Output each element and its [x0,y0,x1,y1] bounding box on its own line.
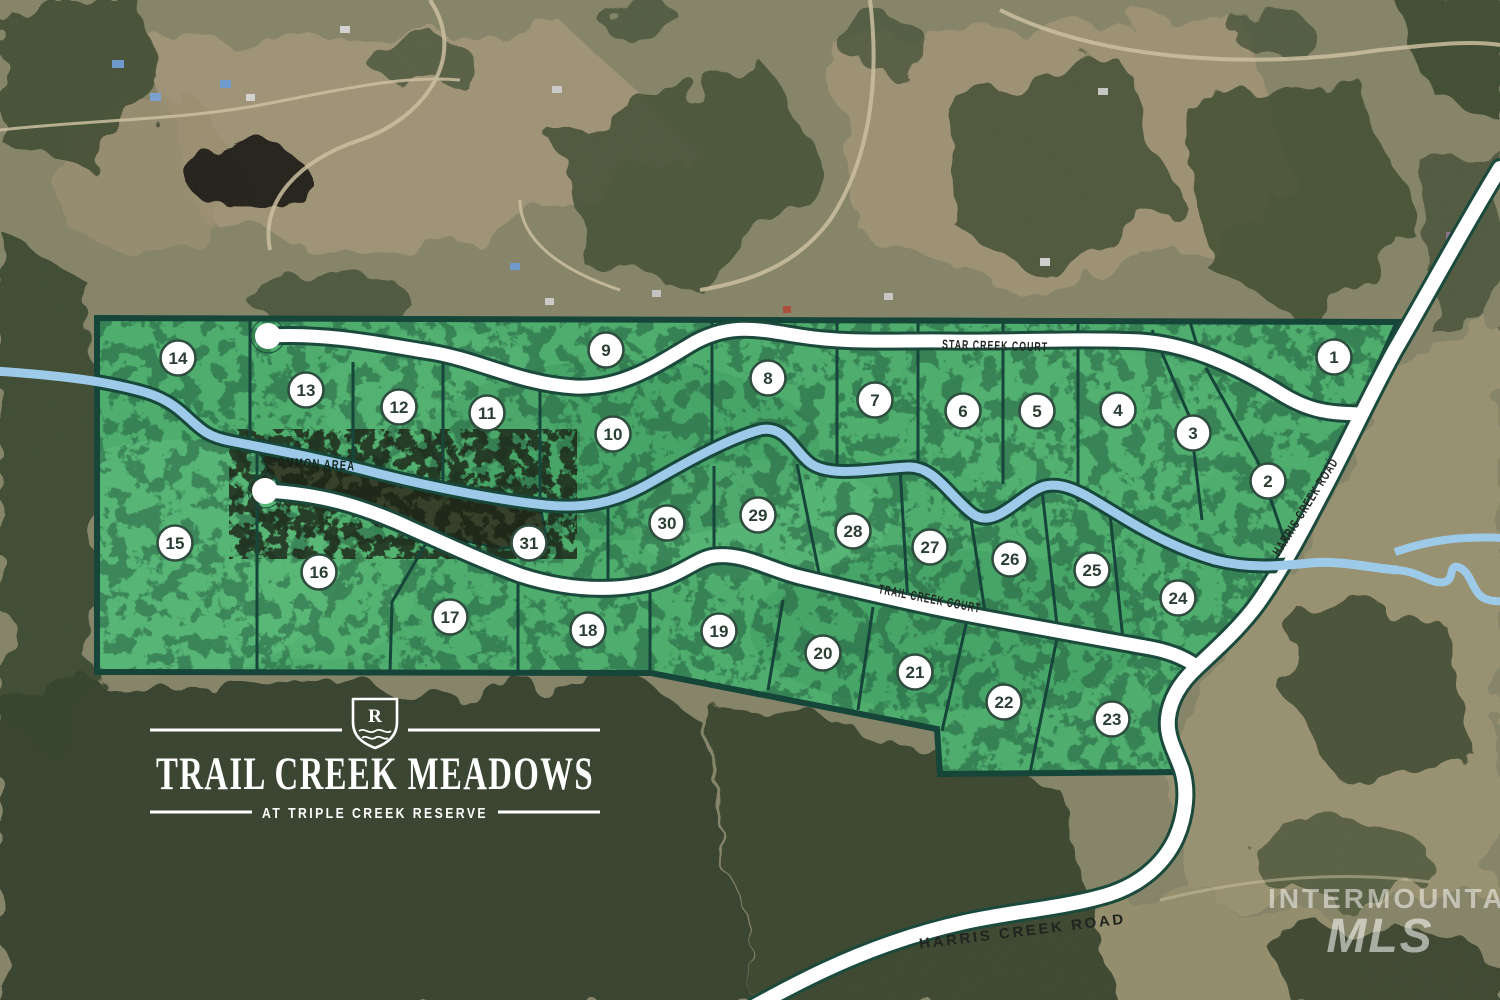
lot-badge-1: 1 [1317,340,1352,375]
lot-badge-6: 6 [946,394,981,429]
watermark-mls: MLS [1326,910,1433,963]
lot-number: 27 [921,538,940,557]
lot-badge-5: 5 [1020,394,1055,429]
lot-number: 7 [870,391,879,410]
lot-number: 13 [297,381,316,400]
lot-number: 2 [1263,472,1272,491]
plat-map-image: STAR CREEK COURT TRAIL CREEK COURT HARRI… [0,0,1500,1000]
lot-badge-21: 21 [898,655,933,690]
lot-number: 29 [749,506,768,525]
lot-badge-28: 28 [836,514,871,549]
lot-number: 4 [1113,401,1123,420]
lot-badge-29: 29 [741,498,776,533]
development-subtitle: AT TRIPLE CREEK RESERVE [262,805,488,822]
lot-badge-7: 7 [858,383,893,418]
lot-badge-14: 14 [161,341,196,376]
lot-badge-15: 15 [158,526,193,561]
star-creek-court-label: STAR CREEK COURT [942,337,1048,355]
lot-number: 6 [958,402,967,421]
lot-number: 24 [1169,589,1188,608]
lot-number: 15 [166,534,185,553]
lot-number: 30 [658,514,677,533]
lot-number: 23 [1103,710,1122,729]
star-creek-culdesac [255,323,281,349]
lot-badge-13: 13 [289,373,324,408]
lot-number: 26 [1001,550,1020,569]
development-title: TRAIL CREEK MEADOWS [156,748,594,800]
logo-monogram: R [368,706,382,727]
lot-number: 25 [1083,561,1102,580]
lot-number: 9 [601,341,610,360]
lot-number: 3 [1188,424,1197,443]
lot-number: 14 [169,349,188,368]
lot-number: 18 [579,621,598,640]
plat-map-svg: STAR CREEK COURT TRAIL CREEK COURT HARRI… [0,0,1500,1000]
lot-number: 21 [906,663,925,682]
lot-badge-16: 16 [302,555,337,590]
lot-badge-30: 30 [650,506,685,541]
lot-badge-23: 23 [1095,702,1130,737]
lot-badge-4: 4 [1101,393,1136,428]
lot-number: 31 [520,534,539,553]
lot-number: 16 [310,563,329,582]
lot-number: 28 [844,522,863,541]
lot-badge-20: 20 [806,636,841,671]
lot-badge-9: 9 [589,333,624,368]
lot-number: 1 [1329,348,1338,367]
lot-badge-10: 10 [596,417,631,452]
lot-number: 12 [390,398,409,417]
lot-number: 22 [995,693,1014,712]
lot-badge-27: 27 [913,530,948,565]
lot-badge-19: 19 [702,614,737,649]
lot-badge-22: 22 [987,685,1022,720]
lot-number: 5 [1032,402,1041,421]
lot-badge-31: 31 [512,526,547,561]
lot-number: 8 [763,369,772,388]
lot-number: 20 [814,644,833,663]
lot-badge-18: 18 [571,613,606,648]
lot-badge-25: 25 [1075,553,1110,588]
lot-badge-12: 12 [382,390,417,425]
lot-badge-3: 3 [1176,416,1211,451]
lot-badge-24: 24 [1161,581,1196,616]
lot-badge-17: 17 [433,600,468,635]
trail-creek-culdesac [252,478,278,504]
lot-badge-8: 8 [751,361,786,396]
lot-badge-11: 11 [470,396,505,431]
lot-badge-2: 2 [1251,464,1286,499]
lot-number: 17 [441,608,460,627]
lot-number: 19 [710,622,729,641]
lot-badge-26: 26 [993,542,1028,577]
lot-number: 10 [604,425,623,444]
lot-number: 11 [478,404,496,423]
